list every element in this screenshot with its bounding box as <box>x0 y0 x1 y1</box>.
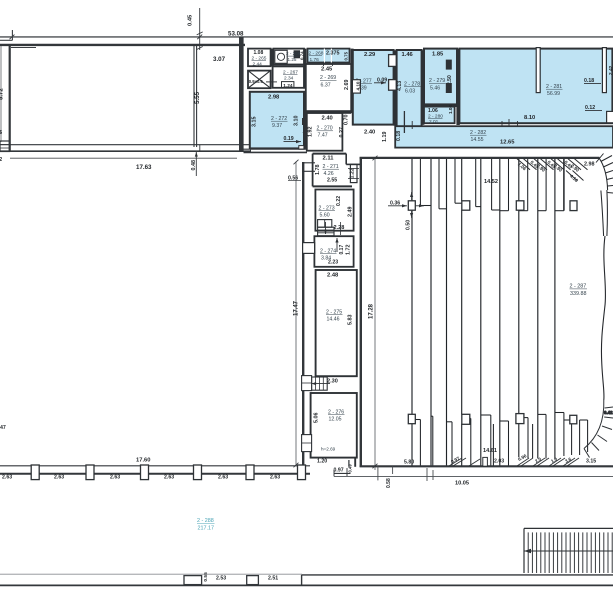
svg-text:14.52: 14.52 <box>484 179 498 185</box>
svg-text:12.05: 12.05 <box>329 417 342 423</box>
svg-text:1.06: 1.06 <box>428 108 438 114</box>
svg-text:6.03: 6.03 <box>405 89 415 95</box>
svg-text:1.47: 1.47 <box>0 425 6 431</box>
svg-text:10.05: 10.05 <box>455 481 469 487</box>
svg-text:2.01: 2.01 <box>429 119 439 125</box>
svg-text:2.63: 2.63 <box>110 474 120 480</box>
svg-text:5.72: 5.72 <box>0 88 5 100</box>
svg-text:.2: .2 <box>0 157 2 163</box>
svg-text:5.80: 5.80 <box>404 460 414 466</box>
svg-text:56.99: 56.99 <box>547 91 560 97</box>
svg-text:2.45: 2.45 <box>321 67 333 73</box>
svg-text:2.40: 2.40 <box>364 130 375 136</box>
svg-text:0.12: 0.12 <box>585 105 595 111</box>
svg-text:1.72: 1.72 <box>346 245 352 256</box>
svg-text:2.51: 2.51 <box>268 576 278 582</box>
svg-text:2.69: 2.69 <box>344 80 350 91</box>
svg-text:0.50: 0.50 <box>406 220 412 230</box>
svg-text:1.76: 1.76 <box>310 57 320 63</box>
svg-text:0.70: 0.70 <box>344 115 350 126</box>
svg-text:9.37: 9.37 <box>272 123 282 129</box>
svg-text:0.97: 0.97 <box>334 468 344 474</box>
svg-text:2.40: 2.40 <box>322 115 333 121</box>
svg-text:4.13: 4.13 <box>397 81 403 91</box>
svg-text:2.53: 2.53 <box>216 576 226 582</box>
svg-text:0.18: 0.18 <box>584 78 594 84</box>
svg-text:1.19: 1.19 <box>382 132 388 143</box>
svg-text:5.55: 5.55 <box>194 91 201 104</box>
svg-text:5.06: 5.06 <box>314 413 320 424</box>
svg-text:2.44: 2.44 <box>253 61 263 67</box>
svg-text:2 - 287: 2 - 287 <box>570 284 587 290</box>
svg-text:0.75: 0.75 <box>344 51 349 60</box>
svg-text:1.08: 1.08 <box>254 50 264 56</box>
svg-text:h=2.69: h=2.69 <box>321 446 336 451</box>
svg-text:1.78: 1.78 <box>315 165 321 176</box>
svg-text:2.98: 2.98 <box>268 94 280 100</box>
svg-text:2.375: 2.375 <box>326 51 340 57</box>
svg-text:17.63: 17.63 <box>136 164 152 171</box>
svg-text:0.17: 0.17 <box>339 245 345 255</box>
svg-text:339.88: 339.88 <box>570 291 587 297</box>
svg-text:0.27: 0.27 <box>339 127 345 138</box>
svg-text:0.19: 0.19 <box>284 136 294 142</box>
svg-text:3.15: 3.15 <box>252 117 258 128</box>
svg-text:2.63: 2.63 <box>270 474 280 480</box>
svg-text:5.83: 5.83 <box>348 315 354 326</box>
svg-text:14.61: 14.61 <box>483 448 497 454</box>
svg-text:2.11: 2.11 <box>323 155 335 161</box>
svg-text:53.08: 53.08 <box>228 31 244 38</box>
svg-text:0.22: 0.22 <box>336 196 342 206</box>
svg-text:2.30: 2.30 <box>327 378 338 384</box>
svg-text:0.18: 0.18 <box>396 131 402 141</box>
svg-text:4.10: 4.10 <box>356 81 361 90</box>
svg-text:217.17: 217.17 <box>198 526 215 532</box>
svg-text:2.63: 2.63 <box>54 474 64 480</box>
svg-text:2.28: 2.28 <box>334 225 345 231</box>
svg-text:2.98: 2.98 <box>584 162 595 168</box>
svg-text:2.42: 2.42 <box>608 65 613 75</box>
svg-text:0.48: 0.48 <box>191 160 197 171</box>
svg-text:2.49: 2.49 <box>348 207 354 218</box>
svg-text:14.46: 14.46 <box>327 317 340 323</box>
svg-text:5.60: 5.60 <box>320 212 330 218</box>
svg-text:2.63: 2.63 <box>218 474 228 480</box>
svg-text:2.63: 2.63 <box>2 474 12 480</box>
svg-text:0.58: 0.58 <box>386 478 392 488</box>
svg-text:1.46: 1.46 <box>402 52 414 58</box>
svg-text:1.92: 1.92 <box>308 127 314 138</box>
svg-text:1.85: 1.85 <box>432 51 444 57</box>
svg-text:0.45: 0.45 <box>188 14 194 26</box>
svg-text:12.65: 12.65 <box>500 140 515 146</box>
svg-text:2.55: 2.55 <box>327 178 337 184</box>
svg-text:3.10: 3.10 <box>294 116 300 127</box>
svg-text:2.23: 2.23 <box>328 260 338 266</box>
svg-text:7.47: 7.47 <box>318 133 328 139</box>
svg-text:1.24: 1.24 <box>283 83 293 89</box>
svg-text:17.47: 17.47 <box>294 300 300 316</box>
svg-text:14.55: 14.55 <box>471 137 484 143</box>
svg-text:2 - 288: 2 - 288 <box>197 518 214 524</box>
svg-text:2.29: 2.29 <box>364 52 376 58</box>
svg-text:2.34: 2.34 <box>284 75 294 81</box>
svg-text:6.37: 6.37 <box>321 82 331 88</box>
svg-text:17.60: 17.60 <box>136 458 151 464</box>
svg-text:2.03: 2.03 <box>494 459 504 465</box>
svg-text:3.07: 3.07 <box>213 56 226 63</box>
svg-text:1.20: 1.20 <box>317 458 327 464</box>
svg-text:5.46: 5.46 <box>430 85 440 91</box>
svg-text:0.55: 0.55 <box>203 572 209 582</box>
svg-text:0.9х0.6: 0.9х0.6 <box>249 79 264 84</box>
svg-text:1.25: 1.25 <box>288 57 297 62</box>
svg-text:2.63: 2.63 <box>164 474 174 480</box>
svg-text:1.08: 1.08 <box>448 105 453 114</box>
svg-text:4.26: 4.26 <box>324 171 334 177</box>
svg-text:0.49: 0.49 <box>348 464 353 473</box>
svg-text:3.15: 3.15 <box>586 458 596 464</box>
svg-text:8.10: 8.10 <box>524 115 535 121</box>
svg-text:0.42: 0.42 <box>604 410 613 415</box>
svg-text:2.48: 2.48 <box>327 273 339 279</box>
svg-text:.6: .6 <box>0 130 2 136</box>
svg-text:17.28: 17.28 <box>369 303 375 319</box>
